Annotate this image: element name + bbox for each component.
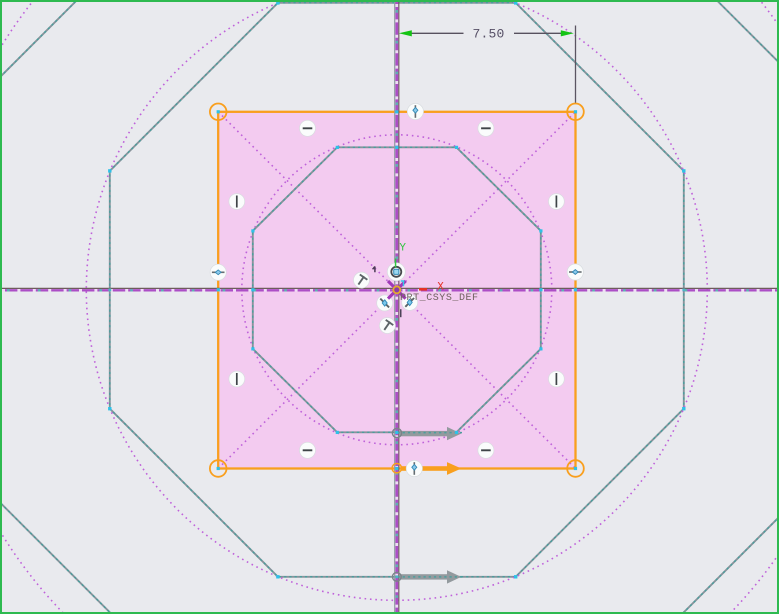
svg-text:PRT_CSYS_DEF: PRT_CSYS_DEF (400, 293, 479, 304)
svg-text:X: X (437, 282, 444, 294)
svg-text:Y: Y (399, 242, 406, 254)
svg-text:7.50: 7.50 (472, 27, 504, 42)
